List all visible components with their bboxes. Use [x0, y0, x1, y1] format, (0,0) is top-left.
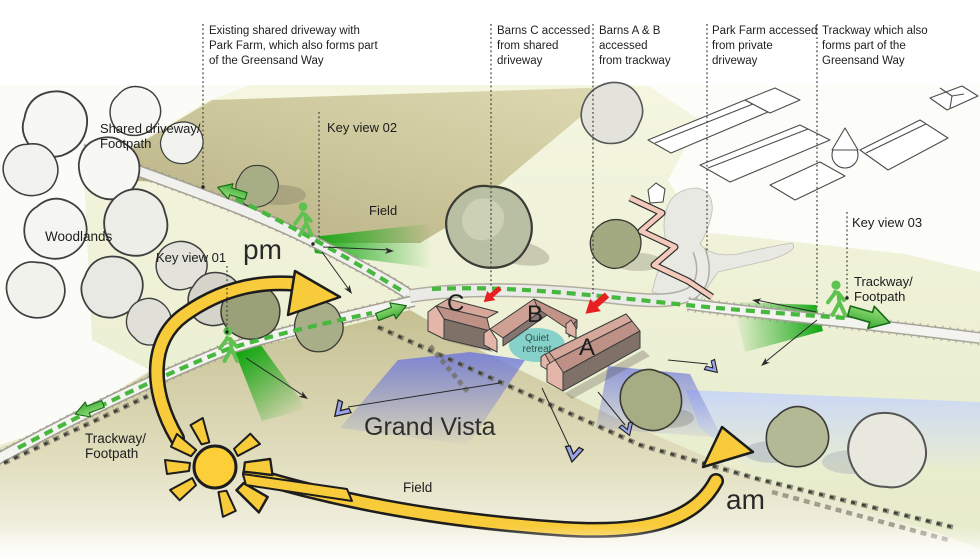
bottom-fade — [0, 526, 980, 559]
site-diagram-canvas — [0, 0, 980, 559]
site-diagram: Existing shared driveway with Park Farm,… — [0, 0, 980, 559]
